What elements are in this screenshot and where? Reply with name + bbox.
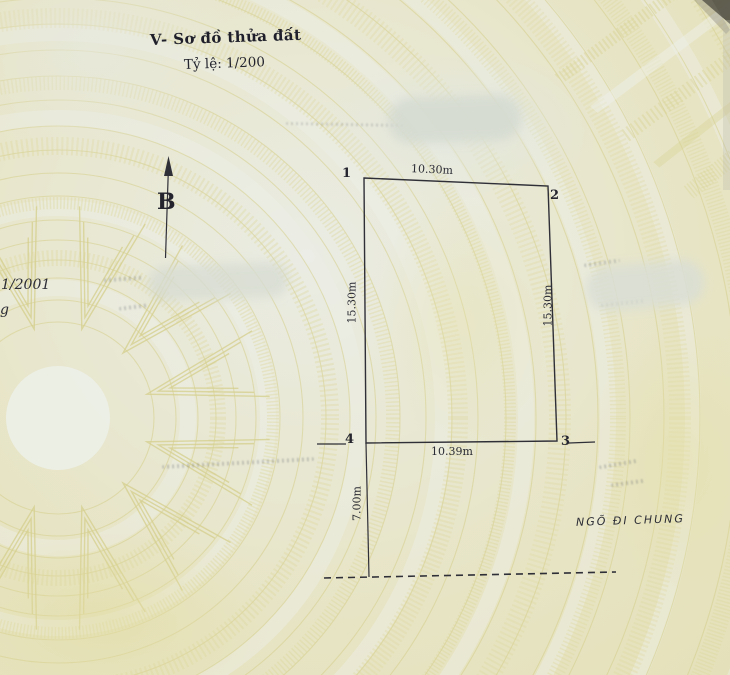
- north-arrow-head: [164, 156, 173, 176]
- corner-label-1: 1: [342, 166, 351, 181]
- corner-label-2: 2: [550, 188, 559, 203]
- dimension-top: 10.30m: [402, 162, 463, 178]
- scale-label: Tỷ lệ: 1/200: [184, 54, 265, 73]
- margin-note-partial: g: [0, 302, 9, 318]
- corner-label-4: 4: [345, 432, 354, 447]
- extension-tick-right: [569, 442, 595, 443]
- scanned-document-page: V- Sơ đồ thửa đất Tỷ lệ: 1/200 B 1/2001 …: [0, 0, 730, 675]
- parcel-boundary: [364, 178, 557, 443]
- alley-depth-line: [366, 443, 369, 577]
- dimension-bottom: 10.39m: [422, 445, 482, 458]
- margin-note-year: 1/2001: [1, 277, 50, 293]
- dimension-alley-depth: 7.00m: [351, 474, 364, 534]
- north-label: B: [157, 189, 176, 215]
- alley-boundary-dashed-line: [324, 572, 616, 578]
- dimension-right: 15.30m: [542, 276, 555, 336]
- plot-diagram: [0, 0, 730, 675]
- dimension-left: 15.30m: [346, 273, 359, 333]
- corner-label-3: 3: [561, 434, 570, 449]
